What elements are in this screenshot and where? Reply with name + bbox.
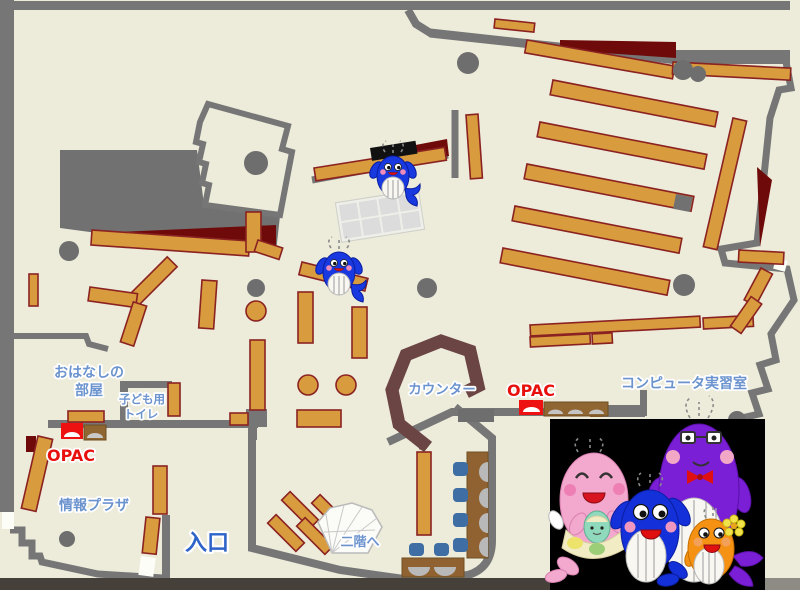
label-computer-room: コンピュータ実習室 — [621, 375, 747, 392]
label-kids-toilet-line2: トイレ — [124, 407, 159, 421]
corridor-left-wall — [162, 515, 170, 580]
label-entrance: 入口 — [185, 531, 229, 556]
label-info-plaza: 情報プラザ — [59, 497, 129, 514]
mascot-family-photo — [544, 396, 765, 590]
office-room-outline — [196, 104, 292, 215]
opac-station-right — [519, 400, 608, 416]
label-story-room-line2: 部屋 — [75, 382, 103, 399]
toilet-top-wall — [120, 381, 172, 388]
bottom-band-right — [765, 578, 800, 590]
return-box — [458, 409, 494, 422]
label-opac-left: OPAC — [47, 446, 95, 465]
label-stairs: 二階へ — [340, 534, 379, 550]
library-floor-map: おはなしの 部屋 子ども用 トイレ OPAC 情報プラザ 入口 二階へ カウンタ… — [0, 0, 800, 590]
left-wall — [0, 0, 14, 512]
baby-whale-mascot — [584, 511, 610, 543]
service-post — [246, 409, 267, 427]
top-wall — [14, 1, 790, 10]
label-kids-toilet-line1: 子ども用 — [119, 392, 165, 406]
label-counter: カウンター — [408, 382, 476, 398]
label-opac-right: OPAC — [507, 381, 555, 400]
opac-station-left — [61, 423, 106, 440]
label-story-room-line1: おはなしの — [54, 365, 124, 381]
floor-map-svg: おはなしの 部屋 子ども用 トイレ OPAC 情報プラザ 入口 二階へ カウンタ… — [0, 0, 800, 590]
